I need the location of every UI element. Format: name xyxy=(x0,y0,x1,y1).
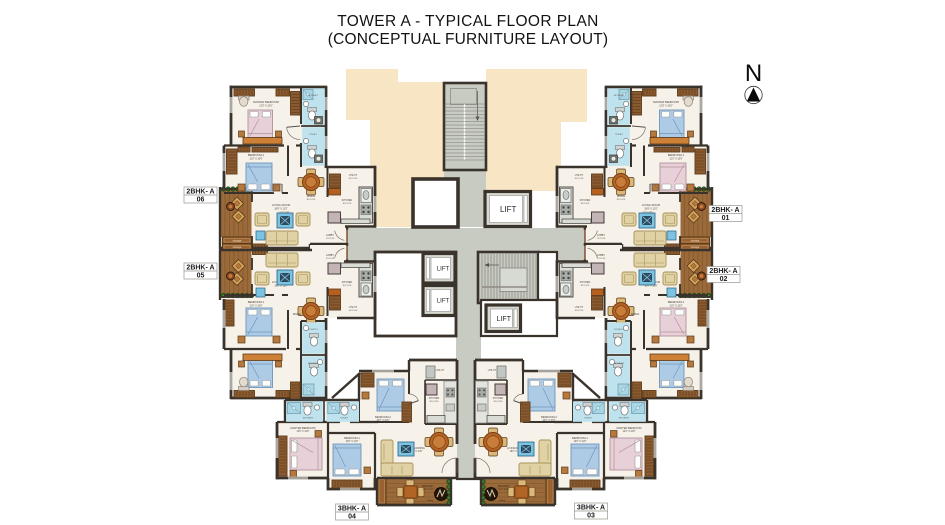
svg-text:BEDROOM-1: BEDROOM-1 xyxy=(668,153,685,157)
svg-text:11'0" X 10'0": 11'0" X 10'0" xyxy=(669,304,682,307)
svg-text:16'8" X 11'0": 16'8" X 11'0" xyxy=(274,207,287,210)
svg-text:LIFT: LIFT xyxy=(500,205,517,214)
svg-text:DINING: DINING xyxy=(631,313,640,316)
svg-text:UTILITY: UTILITY xyxy=(436,370,445,372)
svg-text:11'0" X 10'0": 11'0" X 10'0" xyxy=(249,157,262,160)
svg-text:storage: storage xyxy=(691,245,700,249)
svg-text:TOILET-1: TOILET-1 xyxy=(308,329,318,331)
svg-text:M.TOILET: M.TOILET xyxy=(308,95,319,97)
svg-text:15'0" X 5'0": 15'0" X 5'0" xyxy=(498,489,509,491)
svg-text:6'0 X 4'0: 6'0 X 4'0 xyxy=(575,310,584,312)
svg-text:12'0" X 10'0": 12'0" X 10'0" xyxy=(259,104,273,107)
svg-text:KITCHEN: KITCHEN xyxy=(580,281,591,284)
svg-text:8'0 X 8'0: 8'0 X 8'0 xyxy=(307,199,316,201)
svg-text:8'0 X 6'0: 8'0 X 6'0 xyxy=(343,203,352,205)
svg-text:BEDROOM-1: BEDROOM-1 xyxy=(248,153,265,157)
svg-text:03: 03 xyxy=(587,513,595,520)
svg-text:BEDROOM-2: BEDROOM-2 xyxy=(541,415,557,419)
svg-text:2BHK- A: 2BHK- A xyxy=(186,188,214,195)
svg-text:M.TOILET: M.TOILET xyxy=(308,363,319,365)
svg-text:LIFT: LIFT xyxy=(437,299,450,305)
svg-text:3BHK- A: 3BHK- A xyxy=(577,504,605,511)
svg-text:M.TOILET: M.TOILET xyxy=(614,363,625,365)
svg-text:7'0 X 4'0: 7'0 X 4'0 xyxy=(597,238,606,240)
svg-text:8'0 X 8'0: 8'0 X 8'0 xyxy=(494,401,503,403)
svg-text:12'0" X 12'0": 12'0" X 12'0" xyxy=(297,431,310,433)
svg-text:06: 06 xyxy=(197,197,205,204)
svg-text:M.TOILET: M.TOILET xyxy=(303,418,314,420)
svg-text:(CONCEPTUAL FURNITURE LAYOUT): (CONCEPTUAL FURNITURE LAYOUT) xyxy=(328,31,609,48)
svg-text:2BHK- A: 2BHK- A xyxy=(709,268,737,275)
svg-text:05: 05 xyxy=(197,273,205,280)
svg-text:BEDROOM-1: BEDROOM-1 xyxy=(248,300,265,304)
svg-text:8'0 X 6'0: 8'0 X 6'0 xyxy=(581,203,590,205)
svg-text:10'0" X 11'0": 10'0" X 11'0" xyxy=(346,441,359,443)
svg-text:UTILITY: UTILITY xyxy=(575,307,584,309)
svg-text:TOILET: TOILET xyxy=(309,134,317,136)
svg-text:02: 02 xyxy=(720,276,728,283)
svg-text:12'0" X 10'0": 12'0" X 10'0" xyxy=(659,104,673,107)
svg-text:15'0" X 5'0": 15'0" X 5'0" xyxy=(422,489,433,491)
svg-text:3BHK- A: 3BHK- A xyxy=(338,505,366,512)
svg-text:11'0" X 10'0": 11'0" X 10'0" xyxy=(669,157,682,160)
svg-text:BEDROOM-1: BEDROOM-1 xyxy=(572,436,588,440)
svg-text:DINING: DINING xyxy=(293,313,302,316)
svg-text:MASTER BEDROOM: MASTER BEDROOM xyxy=(653,100,680,104)
svg-text:LOBBY: LOBBY xyxy=(597,234,605,237)
svg-text:railing: railing xyxy=(499,499,506,502)
svg-text:BEDROOM-2: BEDROOM-2 xyxy=(375,415,391,419)
svg-text:KITCHEN: KITCHEN xyxy=(342,281,353,284)
svg-text:LOBBY: LOBBY xyxy=(326,234,334,237)
svg-text:UTILITY: UTILITY xyxy=(575,175,584,177)
svg-text:TOILET: TOILET xyxy=(584,418,592,420)
svg-text:MASTER BEDROOM: MASTER BEDROOM xyxy=(253,100,280,104)
svg-text:BALCONY: BALCONY xyxy=(498,485,510,488)
svg-text:KITCHEN: KITCHEN xyxy=(342,199,353,202)
svg-text:KITCHEN: KITCHEN xyxy=(429,397,440,400)
svg-text:BEDROOM-1: BEDROOM-1 xyxy=(344,436,360,440)
svg-text:railing: railing xyxy=(427,499,434,502)
svg-text:UTILITY: UTILITY xyxy=(349,175,358,177)
svg-text:MASTER BEDROOM: MASTER BEDROOM xyxy=(617,426,642,430)
svg-text:M.TOILET: M.TOILET xyxy=(614,95,625,97)
svg-text:storage: storage xyxy=(691,238,700,242)
svg-text:MASTER BEDROOM: MASTER BEDROOM xyxy=(291,426,316,430)
svg-text:7'0 X 4'0: 7'0 X 4'0 xyxy=(597,258,606,260)
svg-text:storage: storage xyxy=(233,245,242,249)
svg-text:8'0 X 6'0: 8'0 X 6'0 xyxy=(343,285,352,287)
svg-text:10'0" X 10'0": 10'0" X 10'0" xyxy=(377,420,390,422)
svg-text:N: N xyxy=(745,60,762,87)
svg-text:2BHK- A: 2BHK- A xyxy=(711,207,739,214)
svg-text:TOILET-1: TOILET-1 xyxy=(614,329,624,331)
svg-text:BEDROOM-1: BEDROOM-1 xyxy=(668,300,685,304)
svg-text:TOILET: TOILET xyxy=(340,418,348,420)
svg-text:16'8" X 11'0": 16'8" X 11'0" xyxy=(644,207,657,210)
svg-text:TOWER A - TYPICAL FLOOR PLAN: TOWER A - TYPICAL FLOOR PLAN xyxy=(337,13,599,30)
svg-text:10'0" X 10'0": 10'0" X 10'0" xyxy=(543,420,556,422)
svg-text:DINING: DINING xyxy=(617,195,626,198)
svg-text:LOBBY: LOBBY xyxy=(597,254,605,257)
svg-text:8'0 X 8'0: 8'0 X 8'0 xyxy=(617,199,626,201)
svg-text:DINING: DINING xyxy=(307,195,316,198)
svg-text:7'0 X 4'0: 7'0 X 4'0 xyxy=(326,258,335,260)
svg-text:2BHK- A: 2BHK- A xyxy=(186,264,214,271)
svg-text:LIFT: LIFT xyxy=(437,266,450,272)
svg-text:LIVING ROOM: LIVING ROOM xyxy=(272,203,291,207)
svg-text:TOILET: TOILET xyxy=(615,134,623,136)
svg-text:6'0 X 4'0: 6'0 X 4'0 xyxy=(349,178,358,180)
svg-text:LIVING ROOM: LIVING ROOM xyxy=(642,203,661,207)
svg-text:M.TOILET: M.TOILET xyxy=(619,418,630,420)
svg-text:8'0 X 8'0: 8'0 X 8'0 xyxy=(430,401,439,403)
svg-text:12'0" X 12'0": 12'0" X 12'0" xyxy=(623,431,636,433)
svg-text:UTILITY: UTILITY xyxy=(488,370,497,372)
svg-text:LOBBY: LOBBY xyxy=(326,254,334,257)
svg-text:7'0 X 4'0: 7'0 X 4'0 xyxy=(326,238,335,240)
svg-text:UTILITY: UTILITY xyxy=(349,307,358,309)
svg-text:10'0" X 11'0": 10'0" X 11'0" xyxy=(574,441,587,443)
svg-text:LIFT: LIFT xyxy=(497,316,512,323)
svg-text:KITCHEN: KITCHEN xyxy=(580,199,591,202)
svg-text:BALCONY: BALCONY xyxy=(422,485,434,488)
svg-text:6'0 X 4'0: 6'0 X 4'0 xyxy=(349,310,358,312)
svg-text:6'0 X 4'0: 6'0 X 4'0 xyxy=(575,178,584,180)
svg-text:01: 01 xyxy=(722,215,730,222)
svg-text:04: 04 xyxy=(348,514,356,521)
svg-text:11'0" X 10'0": 11'0" X 10'0" xyxy=(249,304,262,307)
svg-text:8'0 X 6'0: 8'0 X 6'0 xyxy=(581,285,590,287)
svg-text:KITCHEN: KITCHEN xyxy=(493,397,504,400)
svg-text:storage: storage xyxy=(233,238,242,242)
